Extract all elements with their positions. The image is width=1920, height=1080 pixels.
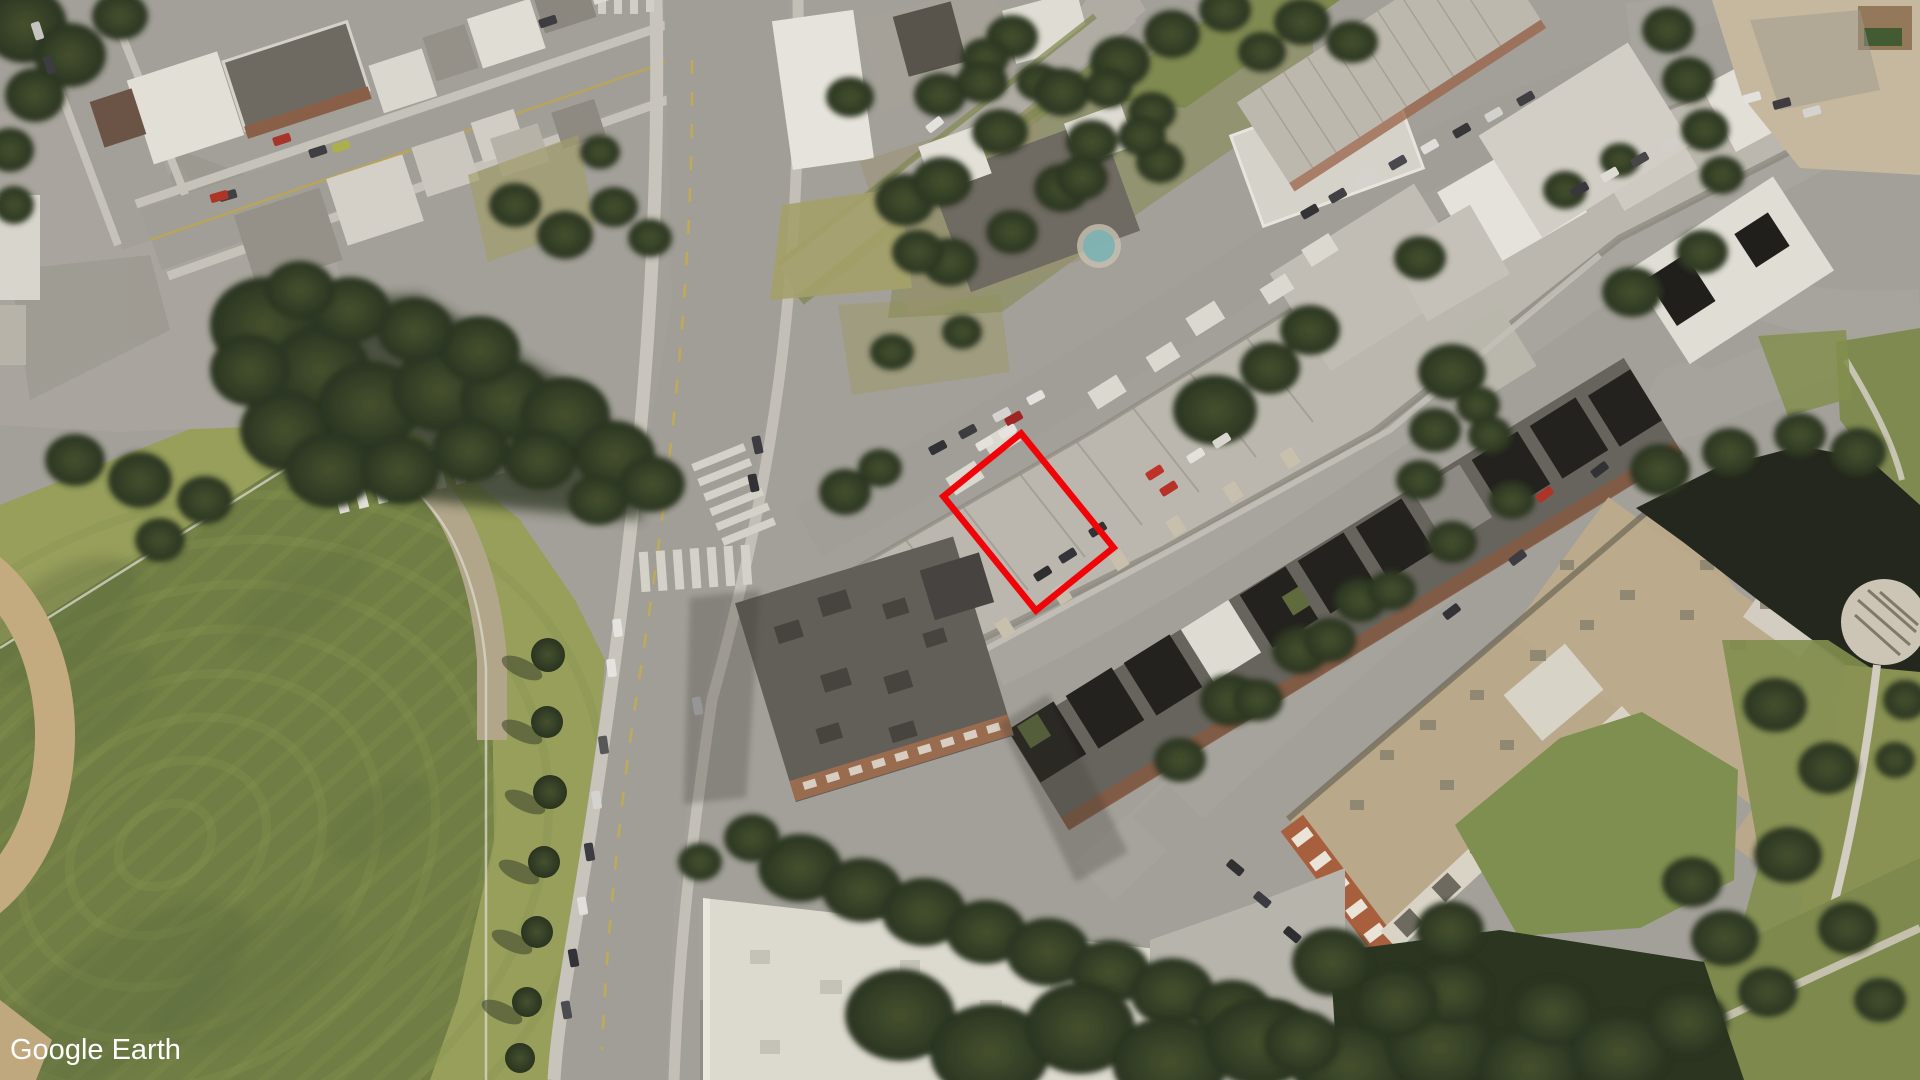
svg-text:Google Earth: Google Earth (10, 1034, 181, 1066)
